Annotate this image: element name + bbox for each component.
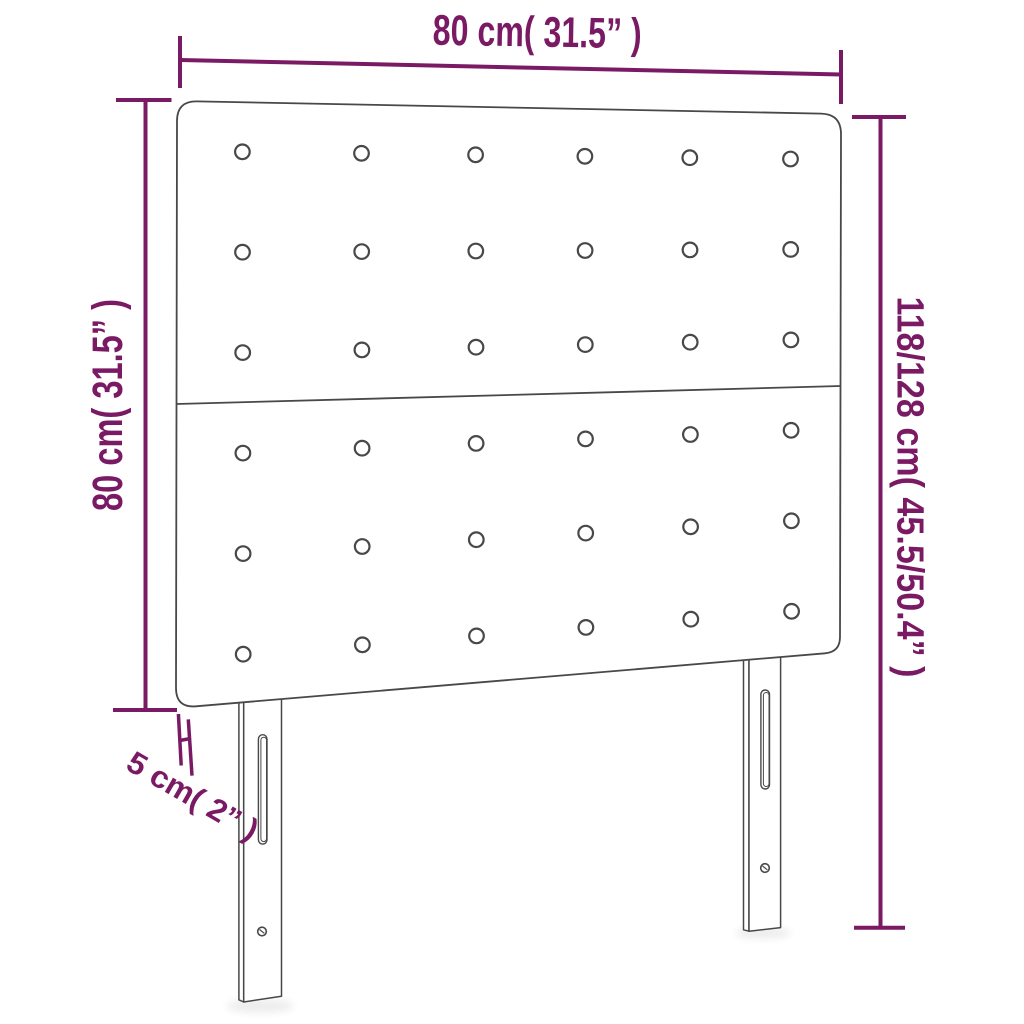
svg-text:80 cm( 31.5” ): 80 cm( 31.5” ) [84,299,132,511]
svg-text:118/128 cm( 45.5/50.4” ): 118/128 cm( 45.5/50.4” ) [889,297,931,678]
svg-text:80 cm( 31.5” ): 80 cm( 31.5” ) [432,7,642,59]
